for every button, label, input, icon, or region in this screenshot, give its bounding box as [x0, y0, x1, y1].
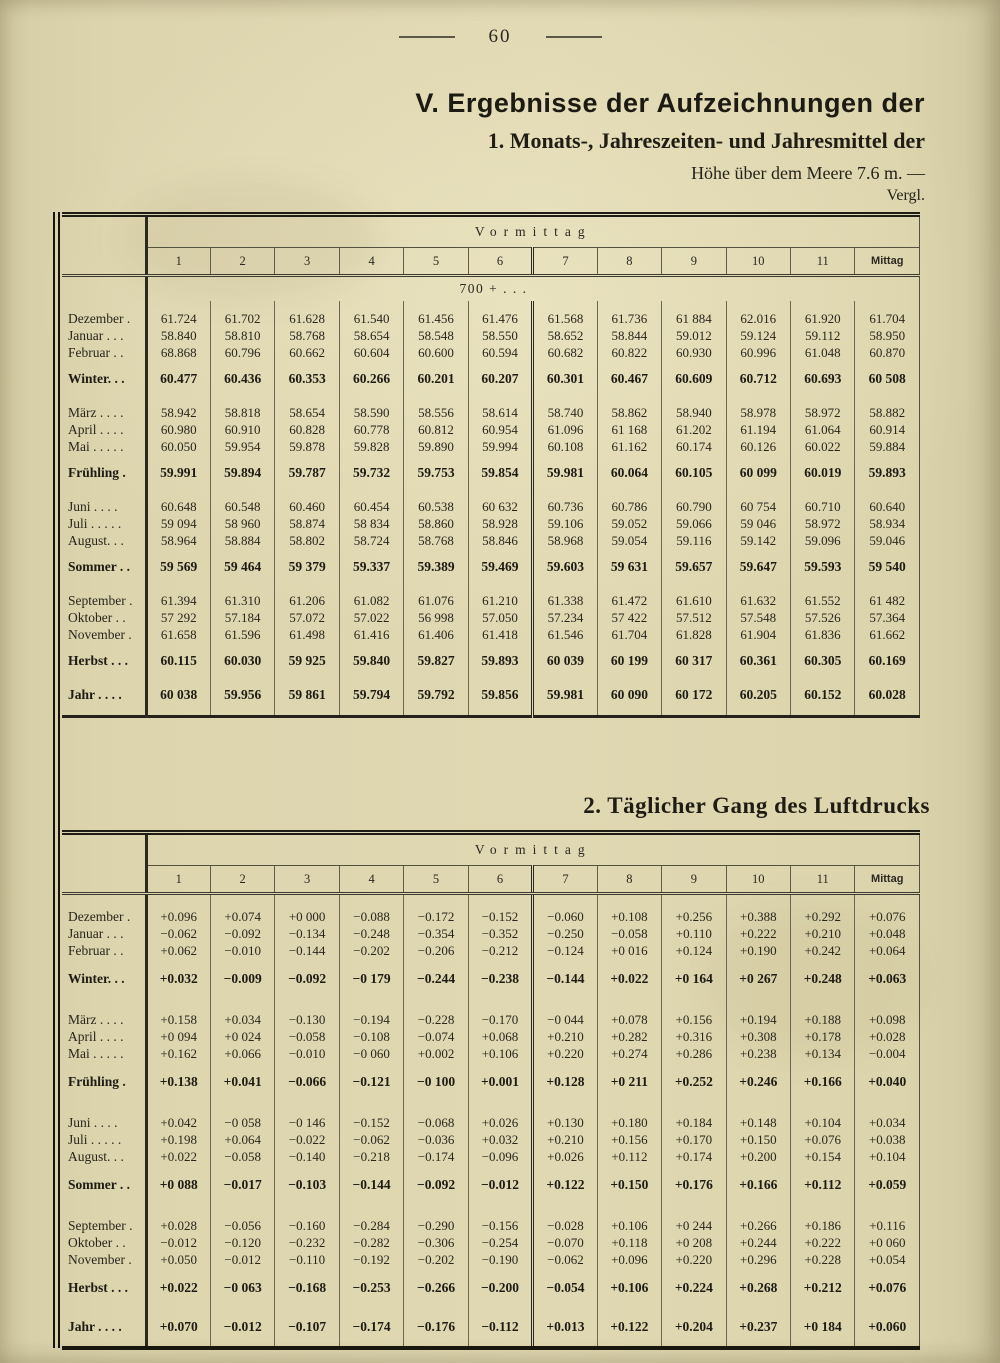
- value-cell: +0.166: [791, 1062, 855, 1101]
- column-header-7: 7: [533, 866, 597, 894]
- value-cell: 59.787: [275, 455, 339, 489]
- value-cell: 61.704: [597, 626, 661, 643]
- value-cell: −0 100: [404, 1062, 468, 1101]
- value-cell: 58.802: [275, 532, 339, 549]
- value-cell: +0.124: [662, 942, 726, 959]
- value-cell: 58.590: [339, 395, 403, 421]
- row-label: Sommer . .: [62, 1165, 146, 1204]
- value-cell: 59.657: [662, 549, 726, 583]
- value-cell: −0.194: [339, 998, 403, 1028]
- value-cell: 58 960: [210, 515, 274, 532]
- value-cell: 60.353: [275, 361, 339, 395]
- value-cell: 58.934: [855, 515, 920, 532]
- value-cell: 60 039: [533, 643, 597, 677]
- value-cell: −0.058: [275, 1028, 339, 1045]
- value-cell: −0.092: [404, 1165, 468, 1204]
- table-row: Herbst . . .60.11560.03059 92559.84059.8…: [62, 643, 920, 677]
- value-cell: 59.890: [404, 438, 468, 455]
- column-header-7: 7: [533, 248, 597, 276]
- table-left-rule: [53, 212, 60, 1348]
- value-cell: −0.058: [597, 925, 661, 942]
- value-cell: +0 088: [146, 1165, 210, 1204]
- value-cell: +0.130: [533, 1101, 597, 1131]
- value-cell: 60 038: [146, 677, 210, 717]
- column-header-11: 11: [791, 866, 855, 894]
- value-cell: 61.702: [210, 301, 274, 327]
- value-cell: 59.389: [404, 549, 468, 583]
- value-cell: 61.552: [791, 583, 855, 609]
- value-cell: +0 208: [662, 1234, 726, 1251]
- value-cell: 58.978: [726, 395, 790, 421]
- value-cell: 59.732: [339, 455, 403, 489]
- value-cell: +0.112: [791, 1165, 855, 1204]
- value-cell: +0.246: [726, 1062, 790, 1101]
- value-cell: +0.106: [597, 1204, 661, 1234]
- value-cell: 60 172: [662, 677, 726, 717]
- value-cell: 59.878: [275, 438, 339, 455]
- value-cell: 58.846: [468, 532, 532, 549]
- value-cell: −0.352: [468, 925, 532, 942]
- value-cell: 57 292: [146, 609, 210, 626]
- value-cell: 58.654: [339, 327, 403, 344]
- value-cell: 61.476: [468, 301, 532, 327]
- value-cell: +0.154: [791, 1148, 855, 1165]
- value-cell: 62.016: [726, 301, 790, 327]
- value-cell: +0.104: [855, 1148, 920, 1165]
- value-cell: 58.810: [210, 327, 274, 344]
- value-cell: 61.828: [662, 626, 726, 643]
- table-row: September .+0.028−0.056−0.160−0.284−0.29…: [62, 1204, 920, 1234]
- column-header-9: 9: [662, 248, 726, 276]
- value-cell: 60.662: [275, 344, 339, 361]
- value-cell: 60.609: [662, 361, 726, 395]
- value-cell: 60.201: [404, 361, 468, 395]
- value-cell: 59.054: [597, 532, 661, 549]
- value-cell: −0.054: [533, 1268, 597, 1307]
- table-row: September .61.39461.31061.20661.08261.07…: [62, 583, 920, 609]
- value-cell: 59.112: [791, 327, 855, 344]
- value-cell: 58.972: [791, 515, 855, 532]
- column-header-1: 1: [146, 248, 210, 276]
- value-cell: 60.105: [662, 455, 726, 489]
- value-cell: 60.019: [791, 455, 855, 489]
- value-cell: −0.200: [468, 1268, 532, 1307]
- value-cell: 61.456: [404, 301, 468, 327]
- value-cell: −0 179: [339, 959, 403, 998]
- value-cell: 60.126: [726, 438, 790, 455]
- row-label: Frühling .: [62, 455, 146, 489]
- value-cell: 58.840: [146, 327, 210, 344]
- value-cell: 60 099: [726, 455, 790, 489]
- column-header-6: 6: [468, 248, 532, 276]
- value-cell: 58.768: [275, 327, 339, 344]
- value-cell: +0.166: [726, 1165, 790, 1204]
- value-cell: −0.017: [210, 1165, 274, 1204]
- row-label: Februar . .: [62, 942, 146, 959]
- table-row: Januar . . .58.84058.81058.76858.65458.5…: [62, 327, 920, 344]
- value-cell: +0.210: [533, 1028, 597, 1045]
- value-cell: 60.436: [210, 361, 274, 395]
- value-cell: −0.282: [339, 1234, 403, 1251]
- value-cell: 61.920: [791, 301, 855, 327]
- value-cell: 59.828: [339, 438, 403, 455]
- column-header-mittag: Mittag: [855, 866, 920, 894]
- value-cell: 60.030: [210, 643, 274, 677]
- value-cell: −0.206: [404, 942, 468, 959]
- value-cell: +0.162: [146, 1045, 210, 1062]
- value-cell: +0.200: [726, 1148, 790, 1165]
- value-cell: −0.056: [210, 1204, 274, 1234]
- value-cell: −0.174: [404, 1148, 468, 1165]
- value-cell: +0.292: [791, 894, 855, 926]
- value-cell: 58.964: [146, 532, 210, 549]
- value-cell: 60.910: [210, 421, 274, 438]
- table-row: Juli . . . . .+0.198+0.064−0.022−0.062−0…: [62, 1131, 920, 1148]
- value-cell: 61.704: [855, 301, 920, 327]
- row-label: Dezember .: [62, 894, 146, 926]
- value-cell: 59.753: [404, 455, 468, 489]
- value-cell: +0.106: [597, 1268, 661, 1307]
- value-cell: +0.112: [597, 1148, 661, 1165]
- value-cell: +0.038: [855, 1131, 920, 1148]
- value-cell: +0.078: [597, 998, 661, 1028]
- value-cell: +0.026: [468, 1101, 532, 1131]
- table-row: Mai . . . . .60.05059.95459.87859.82859.…: [62, 438, 920, 455]
- row-label: Jahr . . . .: [62, 677, 146, 717]
- value-cell: +0.170: [662, 1131, 726, 1148]
- value-cell: +0.122: [533, 1165, 597, 1204]
- value-cell: +0.274: [597, 1045, 661, 1062]
- value-cell: 60 508: [855, 361, 920, 395]
- value-cell: +0.054: [855, 1251, 920, 1268]
- value-cell: −0.010: [275, 1045, 339, 1062]
- scanned-page: 60 V. Ergebnisse der Aufzeichnungen der …: [0, 0, 1000, 1363]
- value-cell: 58.884: [210, 532, 274, 549]
- value-cell: +0.062: [146, 942, 210, 959]
- row-label: Juni . . . .: [62, 489, 146, 515]
- value-cell: 60.640: [855, 489, 920, 515]
- value-cell: +0.212: [791, 1268, 855, 1307]
- value-cell: 59 379: [275, 549, 339, 583]
- value-cell: +0.063: [855, 959, 920, 998]
- value-cell: −0.192: [339, 1251, 403, 1268]
- value-cell: 61.076: [404, 583, 468, 609]
- value-cell: −0.160: [275, 1204, 339, 1234]
- value-cell: +0.176: [662, 1165, 726, 1204]
- value-cell: +0 000: [275, 894, 339, 926]
- value-cell: 59.647: [726, 549, 790, 583]
- monthly-means-table: Vormittag1234567891011Mittag700 + . . .D…: [62, 212, 920, 718]
- value-cell: −0.022: [275, 1131, 339, 1148]
- value-cell: −0.212: [468, 942, 532, 959]
- value-cell: +0 211: [597, 1062, 661, 1101]
- title-block: V. Ergebnisse der Aufzeichnungen der 1. …: [415, 88, 925, 205]
- value-cell: −0.134: [275, 925, 339, 942]
- value-cell: +0.296: [726, 1251, 790, 1268]
- value-cell: +0.074: [210, 894, 274, 926]
- table-row: Winter. . .60.47760.43660.35360.26660.20…: [62, 361, 920, 395]
- value-cell: 61.632: [726, 583, 790, 609]
- value-cell: +0.050: [146, 1251, 210, 1268]
- value-cell: 61.416: [339, 626, 403, 643]
- value-cell: 60.064: [597, 455, 661, 489]
- value-cell: +0.268: [726, 1268, 790, 1307]
- value-cell: +0.220: [662, 1251, 726, 1268]
- value-cell: 58.724: [339, 532, 403, 549]
- value-cell: 61.736: [597, 301, 661, 327]
- value-cell: 61.406: [404, 626, 468, 643]
- value-cell: +0.128: [533, 1062, 597, 1101]
- value-cell: 57.512: [662, 609, 726, 626]
- value-cell: +0.064: [855, 942, 920, 959]
- value-cell: +0 244: [662, 1204, 726, 1234]
- value-cell: −0.107: [275, 1307, 339, 1348]
- value-cell: +0.060: [855, 1307, 920, 1348]
- value-cell: 61.048: [791, 344, 855, 361]
- value-cell: −0.152: [339, 1101, 403, 1131]
- table-row: Sommer . .+0 088−0.017−0.103−0.144−0.092…: [62, 1165, 920, 1204]
- value-cell: 60 199: [597, 643, 661, 677]
- value-cell: 58.972: [791, 395, 855, 421]
- value-cell: 61.472: [597, 583, 661, 609]
- value-cell: 59.954: [210, 438, 274, 455]
- value-cell: 59.893: [468, 643, 532, 677]
- value-cell: +0.148: [726, 1101, 790, 1131]
- column-header-4: 4: [339, 866, 403, 894]
- value-cell: +0.042: [146, 1101, 210, 1131]
- value-cell: 59.337: [339, 549, 403, 583]
- value-cell: 59.066: [662, 515, 726, 532]
- compare-note: Vergl.: [415, 187, 925, 205]
- value-cell: −0 063: [210, 1268, 274, 1307]
- value-cell: 58.942: [146, 395, 210, 421]
- value-cell: +0.013: [533, 1307, 597, 1348]
- row-label: Juni . . . .: [62, 1101, 146, 1131]
- value-cell: 60.736: [533, 489, 597, 515]
- column-header-10: 10: [726, 248, 790, 276]
- value-cell: +0.116: [855, 1204, 920, 1234]
- value-cell: 58.968: [533, 532, 597, 549]
- table-monthly-means: Vormittag1234567891011Mittag700 + . . .D…: [62, 212, 920, 718]
- value-cell: +0.032: [146, 959, 210, 998]
- value-cell: 60.870: [855, 344, 920, 361]
- value-cell: 60.022: [791, 438, 855, 455]
- row-label: Sommer . .: [62, 549, 146, 583]
- value-cell: 58.940: [662, 395, 726, 421]
- table-row: Juni . . . .60.64860.54860.46060.45460.5…: [62, 489, 920, 515]
- value-cell: 60.594: [468, 344, 532, 361]
- table-row: März . . . .+0.158+0.034−0.130−0.194−0.2…: [62, 998, 920, 1028]
- value-cell: 59.884: [855, 438, 920, 455]
- row-label-header: [62, 215, 146, 276]
- value-cell: −0.124: [533, 942, 597, 959]
- value-cell: 58.928: [468, 515, 532, 532]
- value-cell: +0.228: [791, 1251, 855, 1268]
- value-cell: +0.237: [726, 1307, 790, 1348]
- row-label: Jahr . . . .: [62, 1307, 146, 1348]
- value-cell: −0.232: [275, 1234, 339, 1251]
- value-cell: 60.548: [210, 489, 274, 515]
- column-header-6: 6: [468, 866, 532, 894]
- value-cell: −0.108: [339, 1028, 403, 1045]
- value-cell: 60.538: [404, 489, 468, 515]
- value-cell: −0.088: [339, 894, 403, 926]
- value-cell: −0.110: [275, 1251, 339, 1268]
- table-row: März . . . .58.94258.81858.65458.59058.5…: [62, 395, 920, 421]
- value-cell: 59.994: [468, 438, 532, 455]
- value-cell: 59 540: [855, 549, 920, 583]
- value-cell: 59 464: [210, 549, 274, 583]
- value-cell: +0.286: [662, 1045, 726, 1062]
- value-cell: 59.893: [855, 455, 920, 489]
- value-cell: 58.950: [855, 327, 920, 344]
- value-cell: +0.156: [597, 1131, 661, 1148]
- table-row: Juni . . . .+0.042−0 058−0 146−0.152−0.0…: [62, 1101, 920, 1131]
- value-cell: −0.096: [468, 1148, 532, 1165]
- value-cell: −0.070: [533, 1234, 597, 1251]
- row-label: Oktober . .: [62, 609, 146, 626]
- value-cell: −0.176: [404, 1307, 468, 1348]
- value-cell: +0.104: [791, 1101, 855, 1131]
- value-cell: 60.954: [468, 421, 532, 438]
- value-cell: +0.106: [468, 1045, 532, 1062]
- value-cell: −0.218: [339, 1148, 403, 1165]
- dash-rule-left: [399, 36, 455, 38]
- value-cell: +0.308: [726, 1028, 790, 1045]
- value-cell: 61.202: [662, 421, 726, 438]
- value-cell: −0.144: [339, 1165, 403, 1204]
- value-cell: −0.004: [855, 1045, 920, 1062]
- row-label: November .: [62, 626, 146, 643]
- value-cell: +0.028: [855, 1028, 920, 1045]
- value-cell: +0.180: [597, 1101, 661, 1131]
- value-cell: 61.628: [275, 301, 339, 327]
- table-row: Juli . . . . .59 09458 96058.87458 83458…: [62, 515, 920, 532]
- value-cell: 61.210: [468, 583, 532, 609]
- value-cell: +0.066: [210, 1045, 274, 1062]
- table-row: Jahr . . . .+0.070−0.012−0.107−0.174−0.1…: [62, 1307, 920, 1348]
- value-cell: 61.194: [726, 421, 790, 438]
- row-label: Juli . . . . .: [62, 1131, 146, 1148]
- value-cell: −0.144: [533, 959, 597, 998]
- value-cell: 59.792: [404, 677, 468, 717]
- value-cell: +0.150: [726, 1131, 790, 1148]
- value-cell: +0.210: [533, 1131, 597, 1148]
- value-cell: 61.394: [146, 583, 210, 609]
- value-cell: 60.361: [726, 643, 790, 677]
- value-cell: −0.202: [339, 942, 403, 959]
- value-cell: −0.172: [404, 894, 468, 926]
- value-cell: +0.041: [210, 1062, 274, 1101]
- value-cell: 61.724: [146, 301, 210, 327]
- table-row: Mai . . . . .+0.162+0.066−0.010−0 060+0.…: [62, 1045, 920, 1062]
- value-cell: +0.122: [597, 1307, 661, 1348]
- value-cell: 60.914: [855, 421, 920, 438]
- value-cell: 58.652: [533, 327, 597, 344]
- value-cell: +0.076: [855, 1268, 920, 1307]
- table-row: August. . .+0.022−0.058−0.140−0.218−0.17…: [62, 1148, 920, 1165]
- table-row: November .61.65861.59661.49861.41661.406…: [62, 626, 920, 643]
- column-header-9: 9: [662, 866, 726, 894]
- value-cell: 57.548: [726, 609, 790, 626]
- value-cell: −0.144: [275, 942, 339, 959]
- value-cell: +0.282: [597, 1028, 661, 1045]
- value-cell: 59 861: [275, 677, 339, 717]
- value-cell: 59.981: [533, 677, 597, 717]
- group-header-vormittag: Vormittag: [146, 833, 920, 866]
- value-cell: +0.048: [855, 925, 920, 942]
- value-cell: 60 090: [597, 677, 661, 717]
- row-label: Mai . . . . .: [62, 1045, 146, 1062]
- value-cell: +0.002: [404, 1045, 468, 1062]
- row-label: Herbst . . .: [62, 643, 146, 677]
- baseline-note: 700 + . . .: [146, 276, 920, 302]
- value-cell: −0.068: [404, 1101, 468, 1131]
- table-row: Oktober . .57 29257.18457.07257.02256 99…: [62, 609, 920, 626]
- value-cell: 59.981: [533, 455, 597, 489]
- value-cell: 58.844: [597, 327, 661, 344]
- value-cell: −0.036: [404, 1131, 468, 1148]
- value-cell: 60.996: [726, 344, 790, 361]
- value-cell: −0.306: [404, 1234, 468, 1251]
- value-cell: +0.388: [726, 894, 790, 926]
- table-row: Sommer . .59 56959 46459 37959.33759.389…: [62, 549, 920, 583]
- value-cell: 60.786: [597, 489, 661, 515]
- value-cell: +0 267: [726, 959, 790, 998]
- value-cell: 61.658: [146, 626, 210, 643]
- page-number: 60: [489, 26, 512, 48]
- row-label: April . . . .: [62, 421, 146, 438]
- value-cell: 60.796: [210, 344, 274, 361]
- value-cell: −0.062: [533, 1251, 597, 1268]
- value-cell: +0.242: [791, 942, 855, 959]
- row-label: Januar . . .: [62, 925, 146, 942]
- row-label: November .: [62, 1251, 146, 1268]
- value-cell: +0.108: [597, 894, 661, 926]
- value-cell: −0.062: [146, 925, 210, 942]
- row-label: März . . . .: [62, 998, 146, 1028]
- value-cell: +0.252: [662, 1062, 726, 1101]
- value-cell: +0.174: [662, 1148, 726, 1165]
- value-cell: 60 632: [468, 489, 532, 515]
- table-row: Februar . .68.86860.79660.66260.60460.60…: [62, 344, 920, 361]
- value-cell: −0.130: [275, 998, 339, 1028]
- value-cell: +0 016: [597, 942, 661, 959]
- value-cell: 59.046: [855, 532, 920, 549]
- value-cell: 58.860: [404, 515, 468, 532]
- value-cell: 57.526: [791, 609, 855, 626]
- value-cell: 60.600: [404, 344, 468, 361]
- value-cell: 57.364: [855, 609, 920, 626]
- value-cell: −0.266: [404, 1268, 468, 1307]
- value-cell: 61.096: [533, 421, 597, 438]
- value-cell: +0.022: [146, 1148, 210, 1165]
- value-cell: 59.603: [533, 549, 597, 583]
- value-cell: 60.460: [275, 489, 339, 515]
- value-cell: +0.001: [468, 1062, 532, 1101]
- value-cell: +0 060: [855, 1234, 920, 1251]
- value-cell: +0.059: [855, 1165, 920, 1204]
- value-cell: 59.142: [726, 532, 790, 549]
- value-cell: 59.012: [662, 327, 726, 344]
- dash-rule-right: [546, 36, 602, 38]
- value-cell: 60.822: [597, 344, 661, 361]
- value-cell: −0.012: [210, 1251, 274, 1268]
- value-cell: 59.840: [339, 643, 403, 677]
- value-cell: +0.224: [662, 1268, 726, 1307]
- value-cell: 57.022: [339, 609, 403, 626]
- value-cell: −0.012: [146, 1234, 210, 1251]
